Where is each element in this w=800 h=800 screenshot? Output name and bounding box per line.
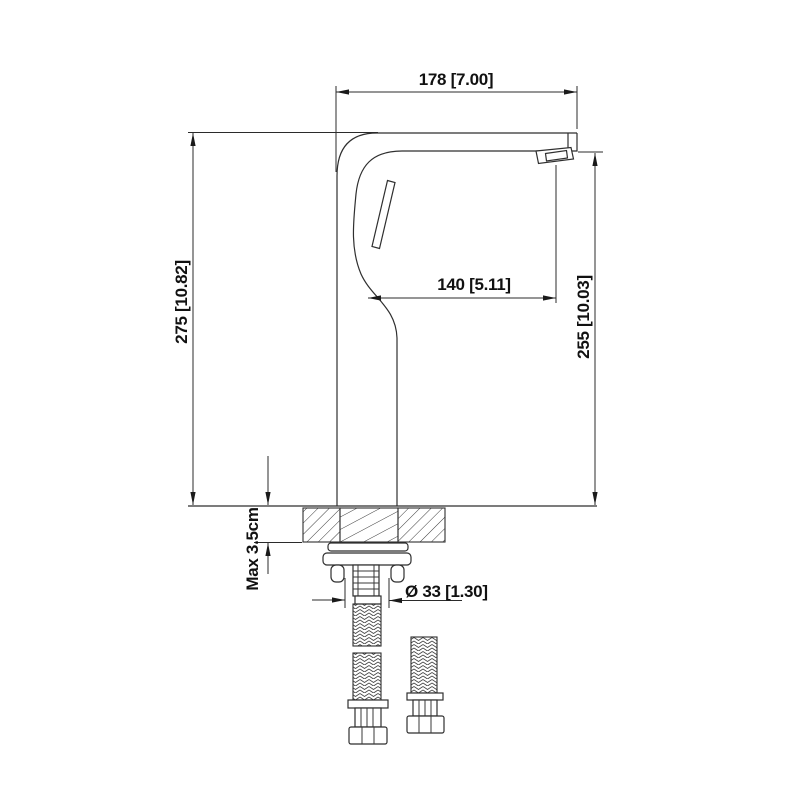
threaded-shank [353,565,379,596]
braid-segment-lower [353,653,381,700]
drawing-canvas: 178 [7.00] 275 [10.82] 140 [5.11] 255 [1… [0,0,800,800]
mounting-bolt-right [391,565,404,582]
dim-spout-height: 255 [10.03] [574,152,603,505]
dim-max-deck-thickness-label: Max 3.5cm [243,507,262,590]
spout-aerator [536,148,574,164]
faucet-body [337,133,577,506]
counter-hatch-left [303,508,340,542]
hose-ribbed-neck [355,708,381,727]
dim-spout-width-label: 178 [7.00] [419,70,494,89]
dim-max-deck-thickness: Max 3.5cm [243,456,302,591]
mounting-flange [323,553,411,565]
faucet-outer-outline [337,133,577,506]
mounting-hardware [323,543,411,604]
dim-spout-height-label: 255 [10.03] [574,275,593,359]
hex-nut [349,727,387,744]
hose-collar [348,700,388,708]
aerator-outer [536,148,574,164]
supply-hose-short [407,637,444,733]
mounting-bolt-left [331,565,344,582]
braid-segment [411,637,437,693]
hex-nut [407,716,444,733]
hose-ferrule [355,596,381,604]
counter-hatch-right [398,508,445,542]
hose-ribbed-neck [413,700,437,716]
faucet-technical-drawing: 178 [7.00] 275 [10.82] 140 [5.11] 255 [1… [0,0,800,800]
dim-spout-reach: 140 [5.11] [368,165,556,303]
counter-hatch-middle [340,508,398,542]
dim-spout-reach-label: 140 [5.11] [437,275,511,294]
rubber-gasket [328,543,408,551]
dim-hole-diameter-label: Ø 33 [1.30] [405,582,488,601]
supply-hose-long [348,604,388,744]
dim-overall-height-label: 275 [10.82] [172,260,191,344]
faucet-handle-lever [372,181,395,249]
braid-segment-upper [353,604,381,646]
hose-collar [407,693,443,700]
dim-overall-height: 275 [10.82] [172,133,378,506]
